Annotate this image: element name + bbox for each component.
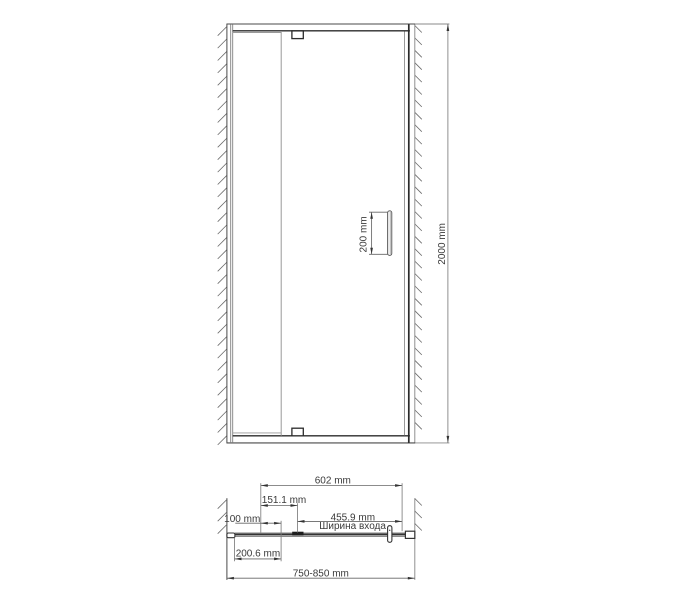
svg-text:602 mm: 602 mm bbox=[315, 475, 351, 486]
svg-text:2000 mm: 2000 mm bbox=[437, 223, 448, 265]
svg-text:151.1 mm: 151.1 mm bbox=[262, 495, 306, 506]
svg-text:200 mm: 200 mm bbox=[358, 216, 369, 252]
svg-text:750-850 mm: 750-850 mm bbox=[293, 568, 349, 579]
svg-text:Ширина входа: Ширина входа bbox=[319, 521, 386, 532]
svg-text:200.6 mm: 200.6 mm bbox=[236, 549, 280, 560]
svg-text:100 mm: 100 mm bbox=[224, 514, 260, 525]
